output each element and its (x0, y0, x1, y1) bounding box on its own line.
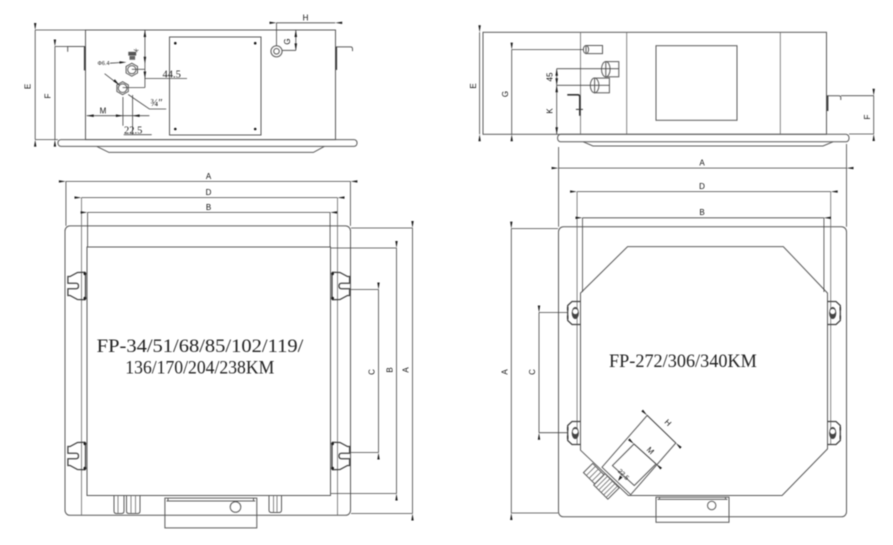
svg-text:M: M (100, 107, 107, 116)
svg-text:A: A (500, 369, 509, 375)
svg-text:K: K (546, 108, 555, 114)
svg-text:Φ6.4: Φ6.4 (98, 61, 110, 67)
svg-text:F: F (44, 93, 53, 98)
svg-text:¾″: ¾″ (151, 98, 163, 109)
svg-text:A: A (402, 367, 411, 373)
svg-text:B: B (699, 208, 704, 217)
svg-text:FP-34/51/68/85/102/119/: FP-34/51/68/85/102/119/ (97, 336, 304, 357)
svg-text:E: E (24, 84, 33, 89)
svg-text:B: B (206, 203, 211, 212)
svg-text:G: G (501, 91, 510, 97)
svg-text:F: F (863, 114, 872, 119)
svg-text:D: D (206, 188, 212, 197)
svg-text:136/170/204/238KM: 136/170/204/238KM (125, 358, 274, 379)
svg-text:D: D (699, 182, 705, 191)
svg-text:C: C (368, 369, 377, 375)
svg-text:A: A (699, 158, 705, 167)
svg-text:B: B (386, 367, 395, 372)
svg-text:H: H (303, 14, 309, 23)
svg-text:FP-272/306/340KM: FP-272/306/340KM (609, 351, 757, 372)
svg-text:44.5: 44.5 (163, 70, 181, 81)
svg-text:C: C (528, 369, 537, 375)
svg-text:G: G (283, 38, 292, 44)
svg-text:E: E (469, 83, 478, 88)
svg-text:45: 45 (546, 72, 555, 81)
svg-text:A: A (206, 172, 212, 181)
